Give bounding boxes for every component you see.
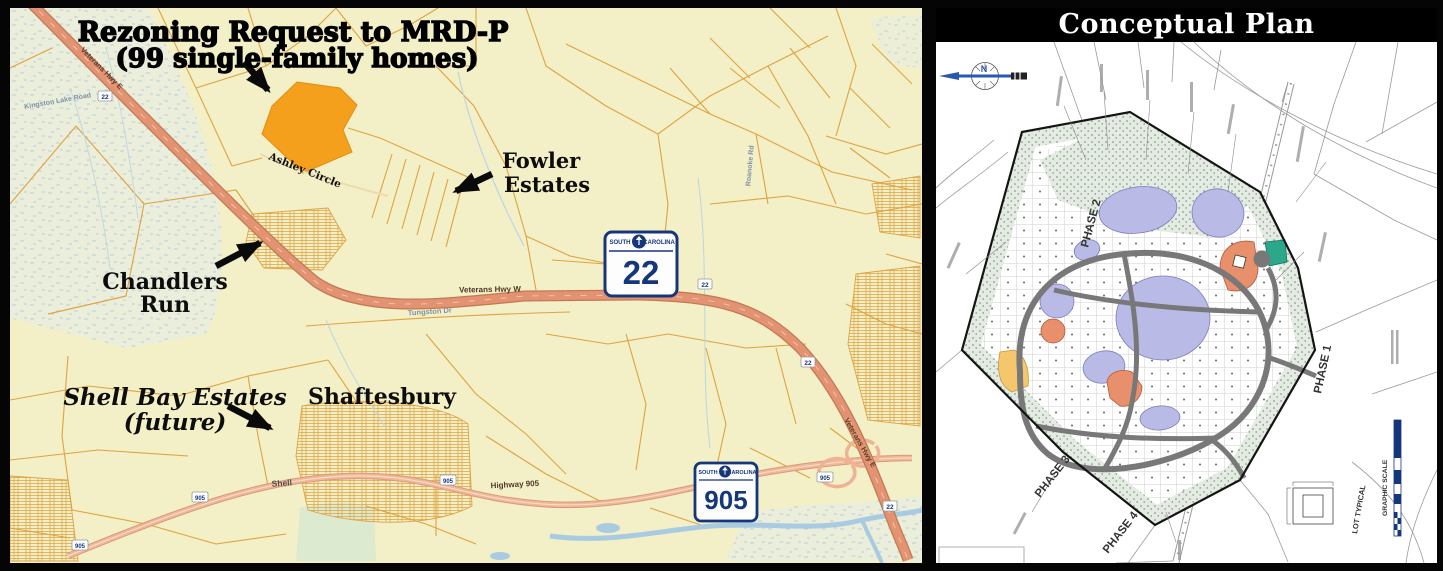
route-22-marker: 22 xyxy=(698,279,712,289)
shield-number: 905 xyxy=(704,485,747,515)
shaftesbury-subdivision xyxy=(296,401,472,522)
shell-label: Shell xyxy=(271,477,292,488)
route-22-marker: 22 xyxy=(883,501,897,511)
clubhouse-icon xyxy=(1233,255,1246,268)
map-title: Rezoning Request to MRD-P (99 single-fam… xyxy=(78,17,509,74)
route-905-marker: 905 xyxy=(817,472,833,482)
svg-text:22: 22 xyxy=(701,282,709,289)
route-905-marker: 905 xyxy=(192,492,208,502)
svg-text:22: 22 xyxy=(886,504,894,511)
shield-number: 22 xyxy=(623,254,660,291)
compass-north-label: N xyxy=(981,64,988,74)
label-shellbay-line2: (future) xyxy=(124,409,226,436)
svg-text:22: 22 xyxy=(804,360,812,367)
veterans-hwy-w-label: Veterans Hwy W xyxy=(459,284,521,294)
route-905-marker: 905 xyxy=(72,540,88,550)
cul-de-sac xyxy=(1254,251,1271,268)
route-22-marker: 22 xyxy=(98,91,112,101)
route-905-marker: 905 xyxy=(440,475,456,485)
svg-text:22: 22 xyxy=(101,94,109,101)
shield-state-right: CAROLINA xyxy=(727,470,756,476)
label-fowler-line2: Estates xyxy=(504,172,590,197)
zoning-map: Veterans Hwy E Veterans Hwy W Veterans H… xyxy=(10,8,922,563)
svg-text:905: 905 xyxy=(75,544,86,550)
label-shaftesbury: Shaftesbury xyxy=(308,384,457,410)
zoning-map-panel: Veterans Hwy E Veterans Hwy W Veterans H… xyxy=(10,8,922,563)
conceptual-plan-panel: Conceptual Plan xyxy=(936,8,1437,563)
svg-text:905: 905 xyxy=(443,479,454,485)
shield-state-left: SOUTH xyxy=(698,470,717,476)
shield-state-left: SOUTH xyxy=(610,240,631,246)
screenshot-root: Veterans Hwy E Veterans Hwy W Veterans H… xyxy=(0,0,1443,571)
svg-text:905: 905 xyxy=(195,496,206,502)
label-chandlers-line2: Run xyxy=(140,292,190,318)
shield-state-right: CAROLINA xyxy=(643,240,675,246)
label-shellbay-line1: Shell Bay Estates xyxy=(63,384,286,411)
route-22-shield: SOUTH CAROLINA 22 xyxy=(605,232,677,296)
route-905-shield: SOUTH CAROLINA 905 xyxy=(695,463,757,521)
route-22-marker: 22 xyxy=(801,357,815,367)
plan-title: Conceptual Plan xyxy=(936,8,1437,42)
amenity-west xyxy=(1041,319,1065,343)
svg-text:905: 905 xyxy=(820,476,831,482)
graphic-scale-label: GRAPHIC SCALE xyxy=(1382,459,1389,516)
map-title-line2: (99 single-family homes) xyxy=(115,44,478,74)
label-fowler-line1: Fowler xyxy=(502,148,581,173)
conceptual-plan-drawing: N PHASE 2 PHASE 1 PHASE 3 PHASE 4 LOT TY… xyxy=(936,42,1437,563)
